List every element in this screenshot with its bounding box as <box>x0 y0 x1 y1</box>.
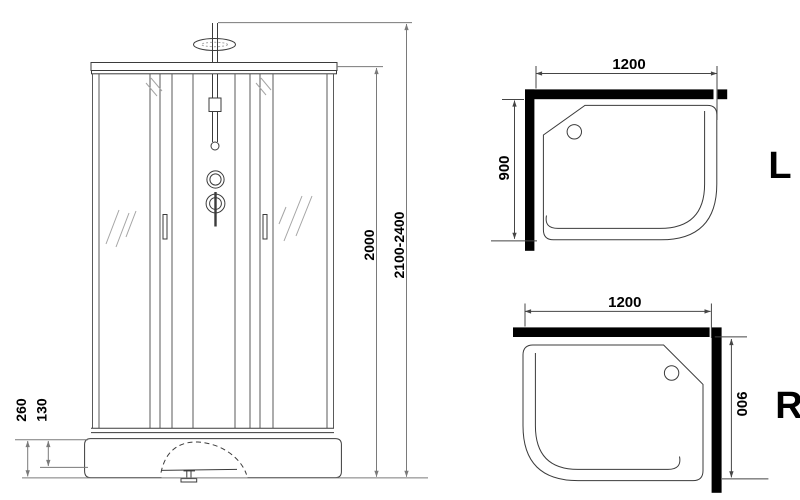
shower-cabin-technical-drawing: 2000 2100-2400 260 130 1200 900 L 1200 9… <box>0 0 800 500</box>
riser-end-cap <box>211 142 219 150</box>
top-view-right: 1200 900 R <box>513 294 800 493</box>
shower-head <box>194 39 236 51</box>
wall-top-bar-end-left-view <box>718 89 728 99</box>
dim-label-depth-left: 900 <box>496 155 513 180</box>
drawing-canvas: 2000 2100-2400 260 130 1200 900 L 1200 9… <box>0 0 800 500</box>
front-view-dimensions: 2000 2100-2400 260 130 <box>13 23 428 478</box>
adjustable-foot <box>181 471 197 482</box>
door-handle-right <box>263 215 267 240</box>
extension-lines <box>15 23 412 468</box>
dim-label-base-mid: 130 <box>34 398 50 422</box>
dim-label-total-height: 2100-2400 <box>391 211 407 278</box>
front-elevation-view <box>85 23 342 482</box>
drain-left <box>567 125 581 139</box>
tray-inner-rim-right <box>535 353 679 469</box>
tray-cutaway-floorline <box>161 469 237 470</box>
tray-outline-right <box>523 345 703 481</box>
dim-label-width-left: 1200 <box>612 56 645 73</box>
door-handle-left <box>163 215 167 240</box>
wall-side-bar-right-view <box>712 327 722 492</box>
riser-slider <box>209 98 221 112</box>
foot-base <box>181 479 197 482</box>
dim-label-glass-height: 2000 <box>361 229 377 260</box>
tray-inner-rim-left <box>546 111 704 228</box>
wall-side-bar-left-view <box>525 89 534 250</box>
view-label-right: R <box>775 385 800 427</box>
wall-top-bar-left-view <box>525 89 714 99</box>
top-frame <box>91 63 337 71</box>
dim-label-depth-right: 900 <box>733 391 750 416</box>
view-label-left: L <box>768 145 791 187</box>
top-view-left: 1200 900 L <box>491 56 792 251</box>
dim-label-width-right: 1200 <box>608 294 641 311</box>
dim-label-base-height: 260 <box>13 398 29 422</box>
control-knob-inner <box>210 174 221 185</box>
drain-right <box>664 366 678 380</box>
bottom-rail <box>91 428 334 432</box>
wall-top-bar-right-view <box>513 327 710 337</box>
top-frame-lip <box>92 71 337 74</box>
